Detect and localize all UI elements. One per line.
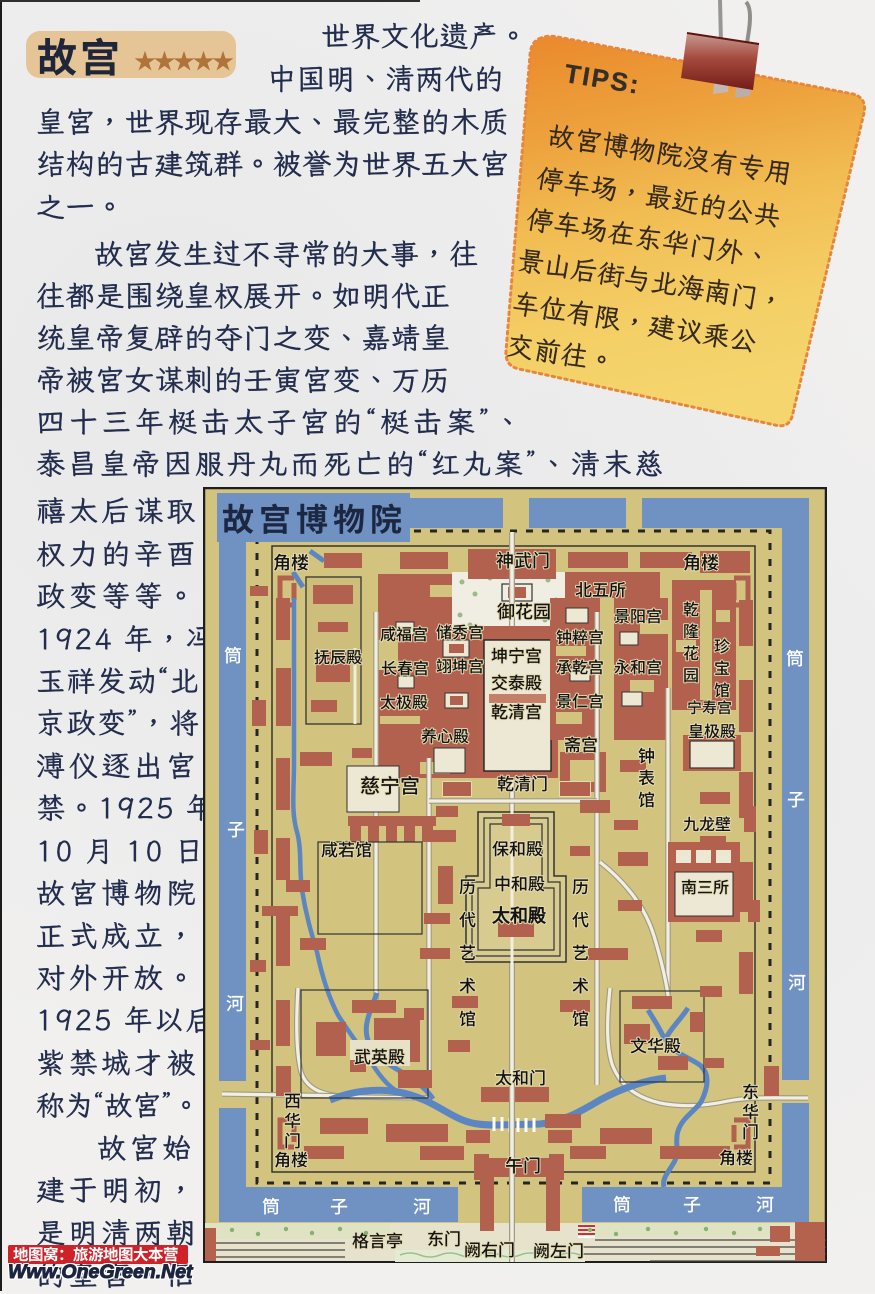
svg-text:南三所: 南三所 — [681, 874, 729, 898]
svg-text:抚辰殿: 抚辰殿 — [314, 644, 362, 668]
svg-text:永和宫: 永和宫 — [614, 654, 662, 678]
svg-text:子: 子 — [227, 816, 245, 842]
svg-text:故宫博物院: 故宫博物院 — [222, 495, 407, 541]
svg-text:筒: 筒 — [786, 645, 804, 671]
svg-text:园: 园 — [683, 662, 699, 686]
svg-text:馆: 馆 — [638, 786, 655, 811]
svg-text:交泰殿: 交泰殿 — [491, 669, 542, 694]
svg-text:宝: 宝 — [714, 655, 730, 679]
svg-text:坤宁宫: 坤宁宫 — [491, 642, 542, 667]
svg-text:术: 术 — [572, 972, 589, 997]
svg-text:代: 代 — [459, 906, 476, 931]
svg-text:花: 花 — [683, 640, 699, 664]
svg-text:隆: 隆 — [683, 618, 699, 642]
svg-text:珍: 珍 — [714, 633, 730, 657]
svg-text:角楼: 角楼 — [274, 1146, 308, 1171]
svg-text:神武门: 神武门 — [496, 547, 550, 573]
svg-text:太和殿: 太和殿 — [492, 902, 547, 928]
svg-text:筒: 筒 — [613, 1191, 631, 1217]
svg-text:景仁宫: 景仁宫 — [556, 688, 604, 712]
svg-text:翊坤宫: 翊坤宫 — [436, 653, 484, 677]
svg-text:中和殿: 中和殿 — [494, 870, 545, 895]
svg-text:乾: 乾 — [683, 596, 699, 620]
svg-text:乾清门: 乾清门 — [497, 770, 548, 795]
svg-text:历: 历 — [459, 873, 476, 898]
svg-text:文华殿: 文华殿 — [630, 1032, 681, 1057]
svg-text:筒: 筒 — [262, 1193, 280, 1219]
svg-text:河: 河 — [756, 1191, 774, 1217]
svg-text:艺: 艺 — [459, 939, 476, 964]
svg-text:艺: 艺 — [572, 939, 589, 964]
svg-text:乾清宫: 乾清宫 — [491, 698, 542, 723]
svg-text:筒: 筒 — [224, 642, 242, 668]
svg-text:格言亭: 格言亭 — [352, 1227, 403, 1252]
svg-text:太极殿: 太极殿 — [380, 689, 428, 713]
svg-text:角楼: 角楼 — [719, 1144, 753, 1169]
svg-text:角楼: 角楼 — [273, 549, 309, 575]
svg-text:保和殿: 保和殿 — [492, 835, 543, 860]
svg-text:斋宫: 斋宫 — [564, 731, 598, 756]
svg-text:钟粹宫: 钟粹宫 — [556, 624, 604, 648]
svg-text:北五所: 北五所 — [575, 576, 626, 601]
svg-text:角楼: 角楼 — [683, 549, 719, 575]
svg-text:午门: 午门 — [505, 1152, 541, 1178]
svg-text:术: 术 — [459, 972, 476, 997]
svg-text:养心殿: 养心殿 — [421, 723, 469, 747]
svg-text:皇极殿: 皇极殿 — [688, 718, 736, 742]
svg-text:东门: 东门 — [427, 1225, 461, 1250]
svg-text:景阳宫: 景阳宫 — [614, 603, 662, 627]
svg-text:储秀宫: 储秀宫 — [436, 619, 484, 643]
svg-text:阙右门: 阙右门 — [464, 1236, 515, 1261]
svg-text:九龙壁: 九龙壁 — [683, 811, 731, 835]
svg-text:子: 子 — [330, 1193, 348, 1219]
svg-text:御花园: 御花园 — [497, 598, 551, 624]
svg-text:阙左门: 阙左门 — [533, 1237, 584, 1262]
svg-text:历: 历 — [572, 873, 589, 898]
svg-text:承乾宫: 承乾宫 — [556, 654, 604, 678]
svg-text:太和门: 太和门 — [495, 1064, 546, 1089]
svg-text:子: 子 — [683, 1191, 701, 1217]
svg-text:武英殿: 武英殿 — [354, 1043, 405, 1068]
svg-text:咸福宫: 咸福宫 — [380, 621, 428, 645]
svg-text:代: 代 — [572, 906, 589, 931]
svg-text:门: 门 — [742, 1118, 759, 1143]
svg-text:子: 子 — [787, 786, 805, 812]
svg-text:馆: 馆 — [572, 1005, 589, 1030]
svg-text:河: 河 — [226, 990, 244, 1016]
svg-text:慈宁宫: 慈宁宫 — [360, 770, 420, 799]
svg-text:河: 河 — [413, 1193, 431, 1219]
svg-text:咸若馆: 咸若馆 — [321, 836, 372, 861]
svg-text:馆: 馆 — [459, 1005, 476, 1030]
svg-text:河: 河 — [788, 969, 806, 995]
svg-text:长春宫: 长春宫 — [381, 655, 429, 679]
svg-text:宁寿宫: 宁寿宫 — [687, 697, 732, 718]
